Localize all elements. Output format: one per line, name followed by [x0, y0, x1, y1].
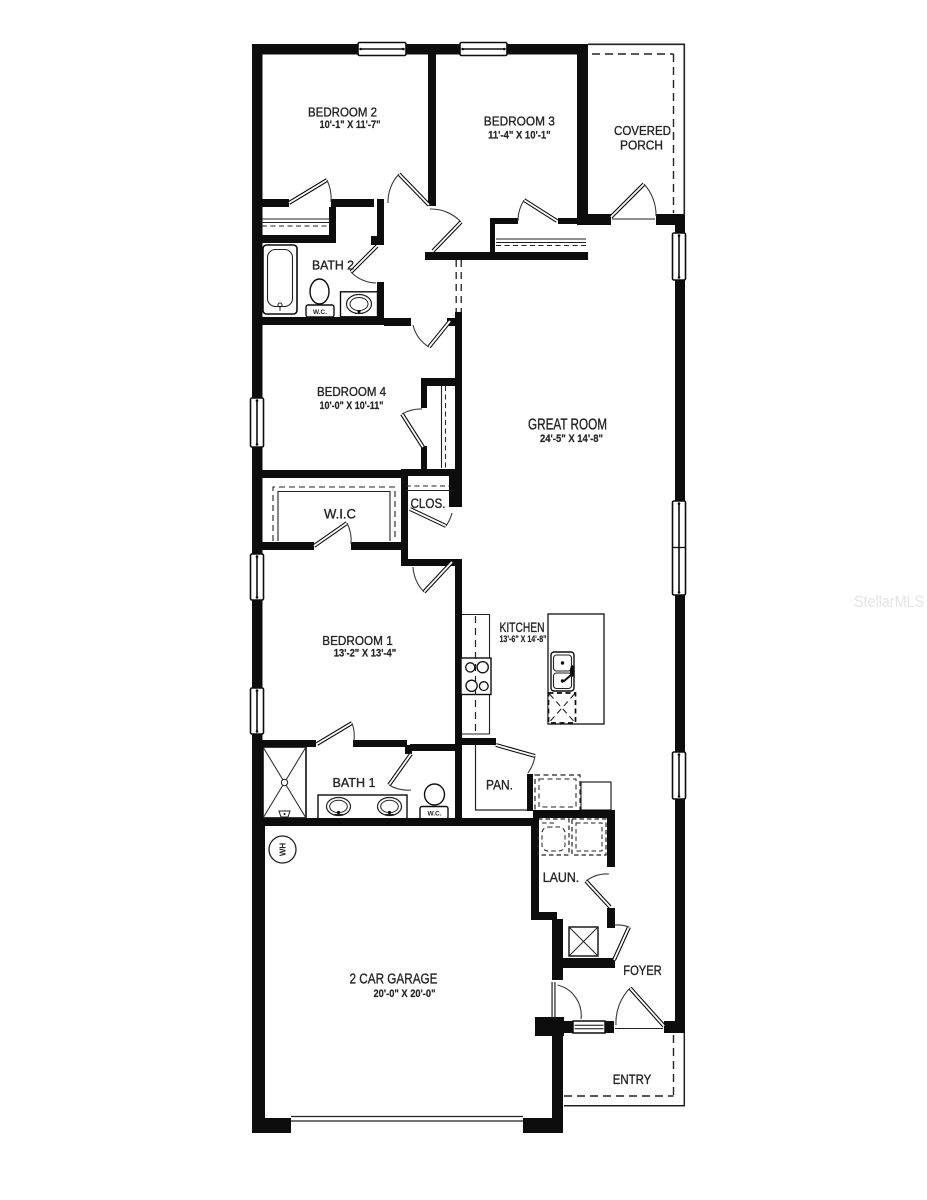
svg-text:BEDROOM 4: BEDROOM 4	[317, 384, 386, 399]
svg-text:GREAT ROOM: GREAT ROOM	[528, 417, 607, 434]
svg-text:BEDROOM 3: BEDROOM 3	[484, 113, 555, 128]
svg-text:PORCH: PORCH	[620, 137, 663, 152]
svg-text:StellarMLS: StellarMLS	[854, 592, 924, 611]
svg-text:BATH 1: BATH 1	[333, 775, 376, 790]
svg-text:10'-0" X 10'-11": 10'-0" X 10'-11"	[320, 400, 384, 412]
svg-text:PAN.: PAN.	[486, 778, 513, 793]
svg-text:24'-5" X 14'-8": 24'-5" X 14'-8"	[540, 433, 603, 445]
svg-text:11'-4" X 10'-1": 11'-4" X 10'-1"	[488, 129, 551, 141]
svg-text:BEDROOM 2: BEDROOM 2	[308, 105, 377, 120]
svg-text:BEDROOM 1: BEDROOM 1	[322, 633, 393, 648]
svg-text:13'-6" X 14'-8": 13'-6" X 14'-8"	[500, 634, 547, 644]
svg-text:WH: WH	[279, 843, 288, 857]
svg-text:W.C.: W.C.	[427, 811, 441, 818]
svg-text:FOYER: FOYER	[623, 963, 662, 978]
svg-text:COVERED: COVERED	[614, 123, 671, 138]
svg-text:20'-0" X 20'-0": 20'-0" X 20'-0"	[374, 988, 436, 1000]
svg-text:ENTRY: ENTRY	[613, 1072, 652, 1087]
svg-text:CLOS.: CLOS.	[411, 496, 446, 511]
svg-text:BATH 2: BATH 2	[312, 259, 354, 273]
svg-text:LAUN.: LAUN.	[543, 870, 580, 885]
svg-text:13'-2" X 13'-4": 13'-2" X 13'-4"	[334, 648, 397, 660]
svg-text:2 CAR GARAGE: 2 CAR GARAGE	[350, 971, 438, 988]
svg-text:10'-1" X 11'-7": 10'-1" X 11'-7"	[320, 119, 381, 131]
svg-text:KITCHEN: KITCHEN	[500, 619, 545, 635]
svg-text:W.I.C: W.I.C	[324, 506, 356, 521]
svg-text:W.C.: W.C.	[313, 309, 327, 316]
